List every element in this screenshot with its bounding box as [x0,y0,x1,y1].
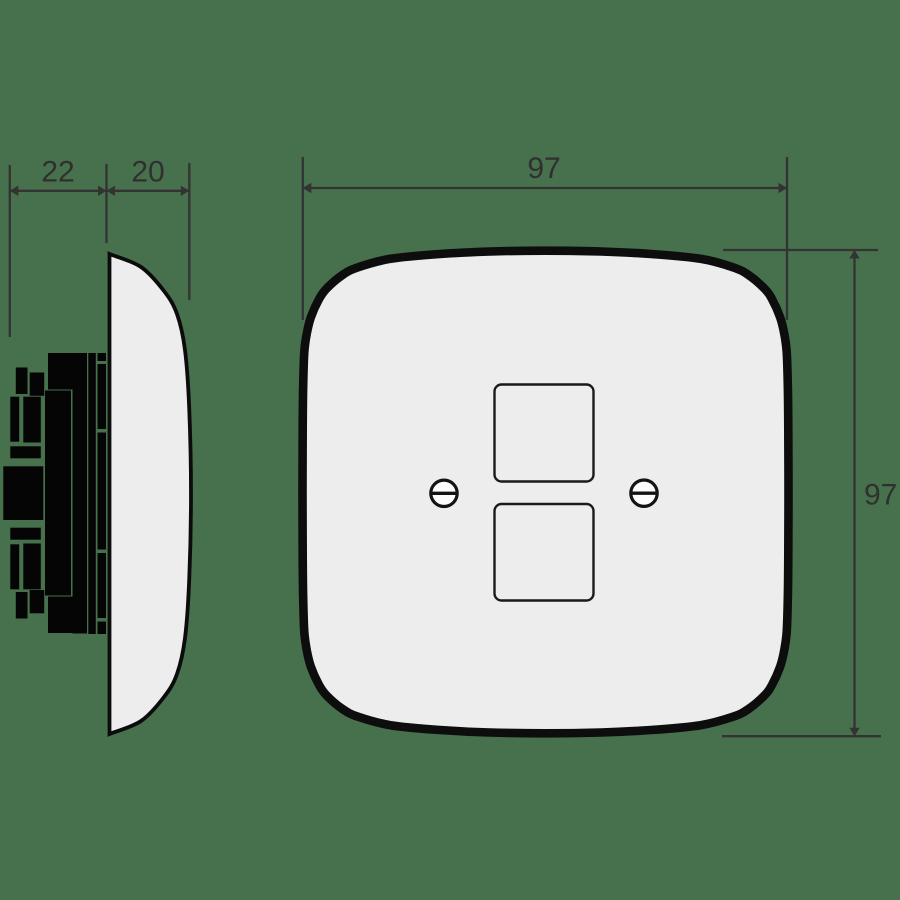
svg-text:22: 22 [41,156,74,189]
svg-text:97: 97 [864,479,897,512]
svg-text:20: 20 [131,156,164,189]
svg-text:97: 97 [527,152,560,185]
